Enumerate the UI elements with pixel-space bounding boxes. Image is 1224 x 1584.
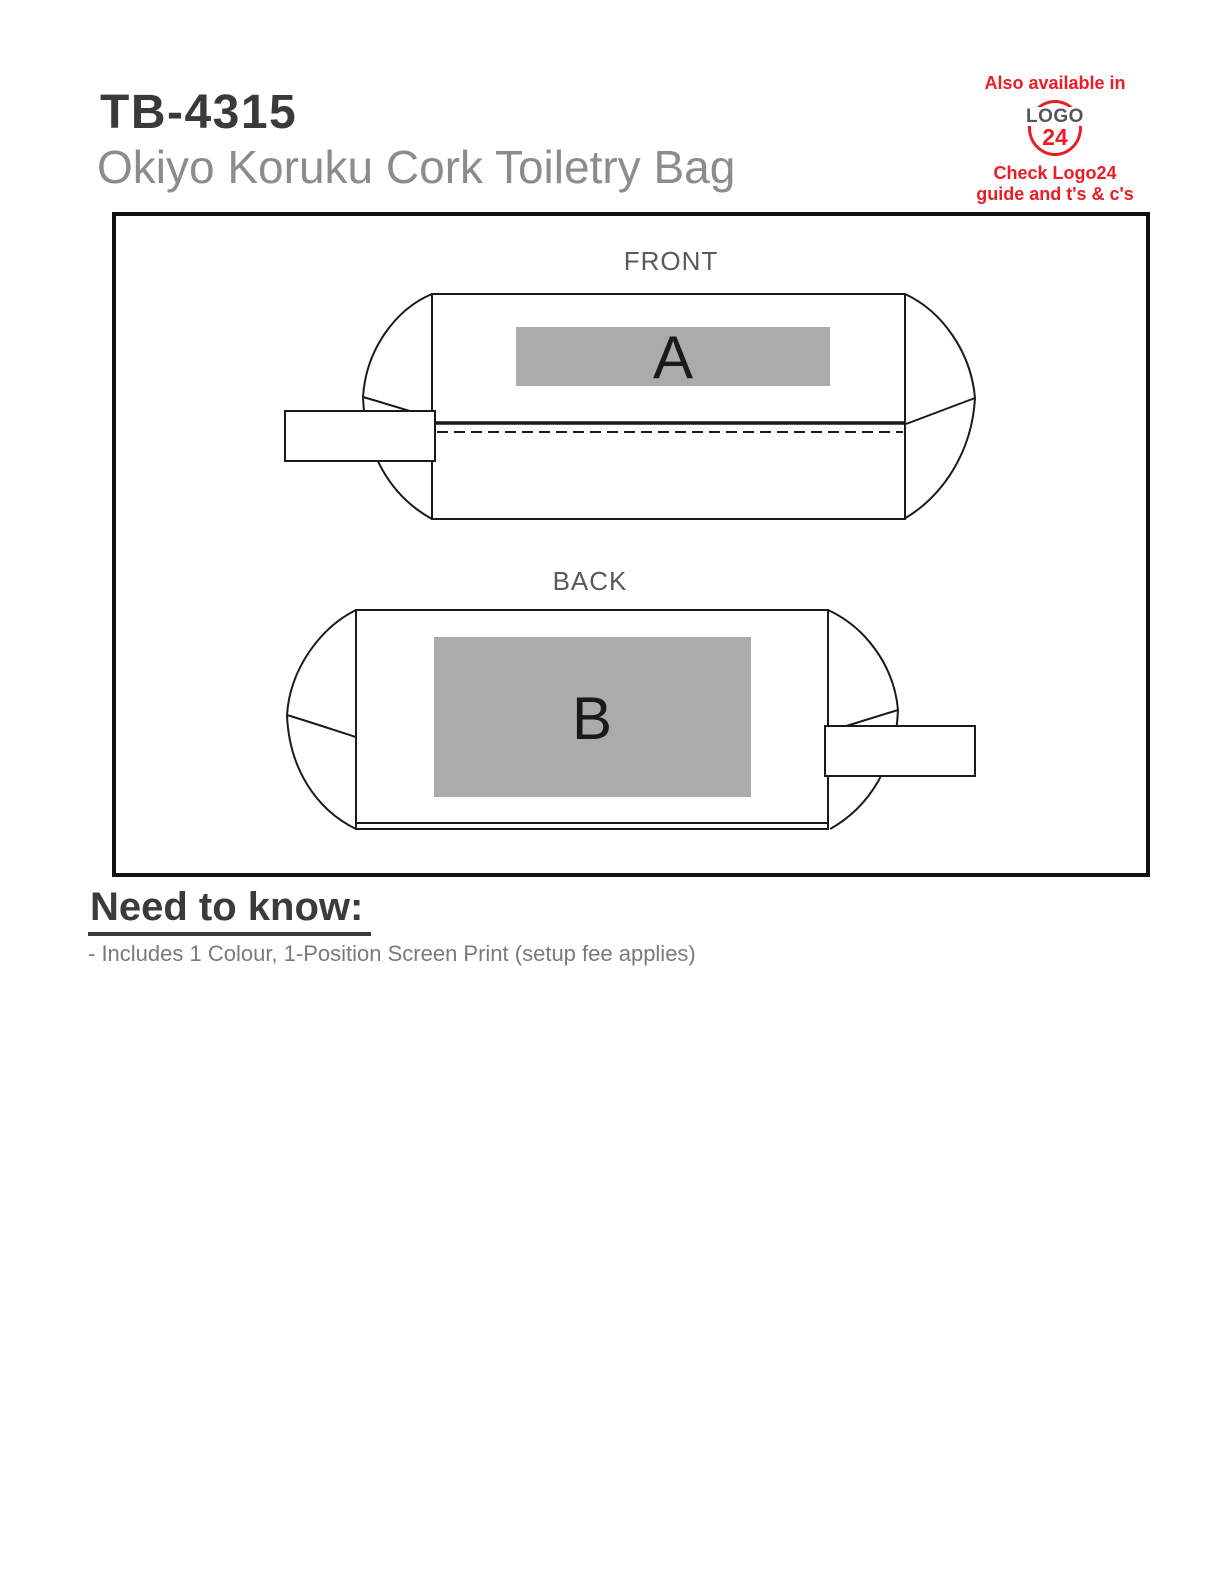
diagram-panel: FRONT A BACK [112,212,1150,877]
need-to-know-item: - Includes 1 Colour, 1-Position Screen P… [88,941,696,967]
product-name-subtitle: Okiyo Koruku Cork Toiletry Bag [97,144,735,190]
logo24-number: 24 [1026,126,1084,149]
back-left-gusset-top-curve [287,610,356,715]
front-right-gusset-bottom-curve [904,398,975,519]
front-bag-diagram: A [270,280,990,530]
front-view-label: FRONT [624,248,719,274]
logo24-availability-block: Also available in LOGO 24 Check Logo24 g… [950,73,1160,205]
logo24-check-note-line1: Check Logo24 [950,163,1160,184]
front-left-gusset-top-curve [363,294,432,397]
back-right-gusset-top-curve [828,610,898,710]
front-right-gusset-crease [906,398,975,424]
front-handle-tab [285,411,435,461]
back-bag-diagram: B [270,590,990,840]
product-code-title: TB-4315 [100,89,297,137]
print-area-b-label: B [572,685,612,752]
logo24-available-text: Also available in [950,73,1160,94]
print-area-a-label: A [653,324,693,391]
logo24-check-note-line2: guide and t's & c's [950,184,1160,205]
back-handle-tab [825,726,975,776]
back-left-gusset-bottom-curve [287,715,356,829]
need-to-know-heading: Need to know: [88,885,371,936]
back-left-gusset-crease [287,715,356,737]
logo24-icon: LOGO 24 [1026,99,1084,157]
front-right-gusset-top-curve [905,294,975,398]
spec-sheet-page: TB-4315 Okiyo Koruku Cork Toiletry Bag A… [0,0,1224,1584]
